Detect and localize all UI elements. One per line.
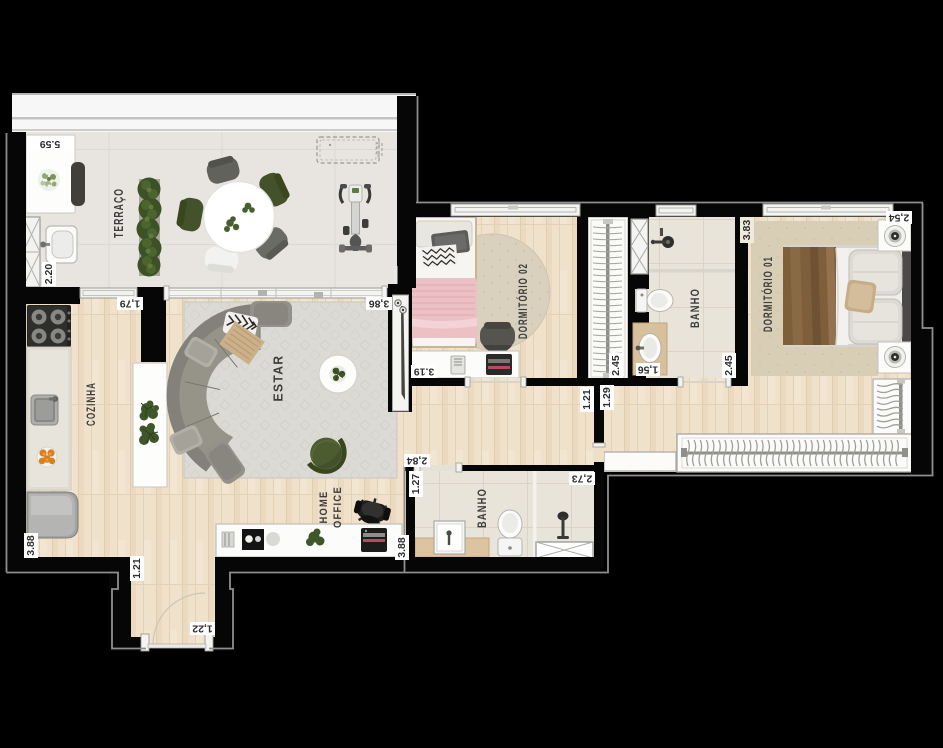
- svg-text:BANHO: BANHO: [477, 488, 489, 528]
- svg-text:1,22: 1,22: [192, 623, 213, 635]
- svg-text:2,84: 2,84: [407, 455, 428, 467]
- svg-text:3,86: 3,86: [369, 298, 390, 310]
- svg-text:2.45: 2.45: [610, 355, 622, 376]
- svg-text:DORMITÓRIO 02: DORMITÓRIO 02: [517, 263, 530, 339]
- svg-text:5.59: 5.59: [40, 138, 61, 150]
- svg-text:2,54: 2,54: [889, 212, 910, 224]
- svg-text:2.45: 2.45: [723, 355, 735, 376]
- svg-text:1.29: 1.29: [601, 387, 613, 408]
- svg-text:1.21: 1.21: [131, 558, 143, 579]
- svg-text:1.21: 1.21: [581, 389, 593, 410]
- svg-text:BANHO: BANHO: [690, 288, 702, 328]
- svg-text:3.19: 3.19: [414, 366, 435, 378]
- svg-text:2,73: 2,73: [572, 473, 593, 485]
- svg-text:1,56: 1,56: [638, 364, 659, 376]
- svg-text:2.20: 2.20: [43, 264, 55, 285]
- svg-text:DORMITÓRIO 01: DORMITÓRIO 01: [762, 256, 775, 332]
- svg-text:3.83: 3.83: [741, 220, 753, 241]
- svg-text:3.88: 3.88: [25, 535, 37, 556]
- svg-text:1.27: 1.27: [410, 474, 422, 495]
- svg-text:COZINHA: COZINHA: [84, 382, 98, 426]
- svg-text:3.88: 3.88: [396, 537, 408, 558]
- svg-text:1,79: 1,79: [120, 298, 141, 310]
- svg-text:HOME: HOME: [318, 491, 330, 524]
- svg-text:OFFICE: OFFICE: [332, 486, 344, 528]
- svg-text:TERRAÇO: TERRAÇO: [112, 188, 126, 238]
- svg-text:ESTAR: ESTAR: [271, 355, 286, 402]
